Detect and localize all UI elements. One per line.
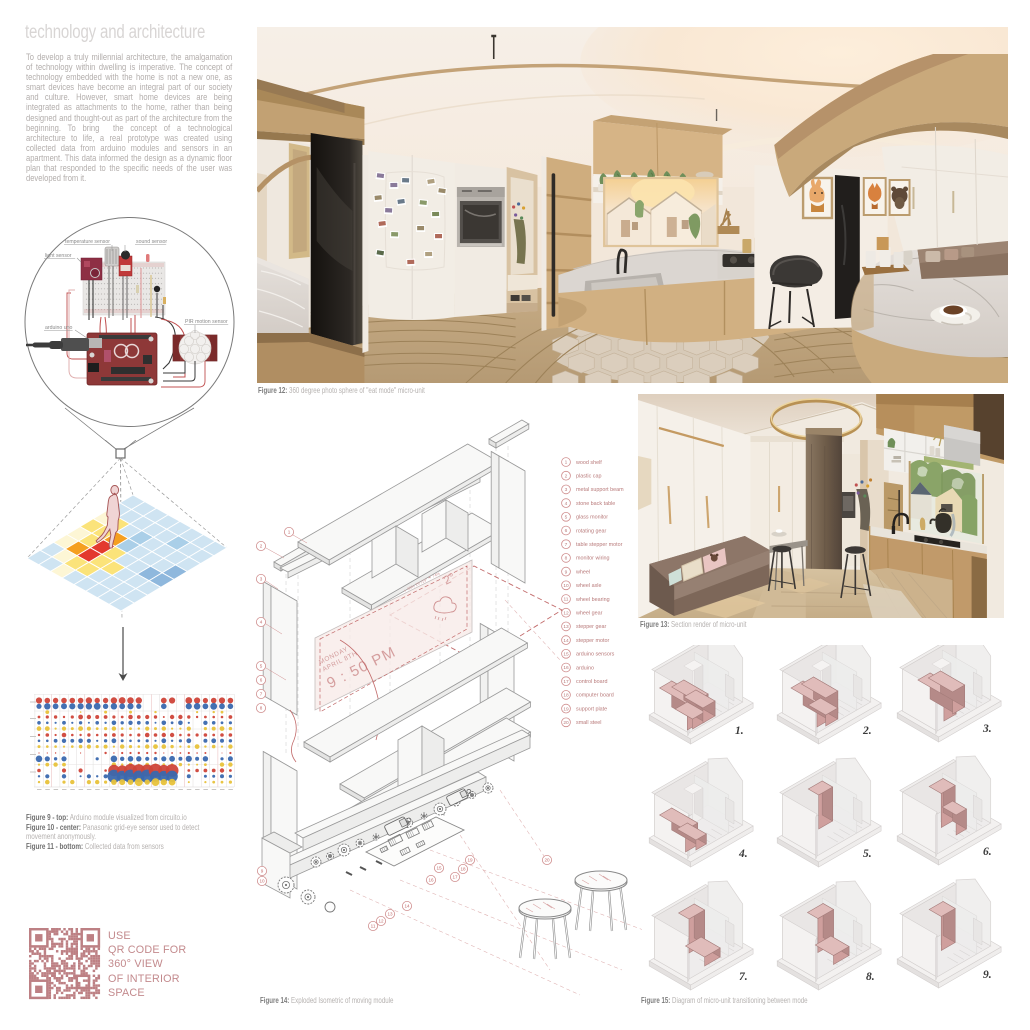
svg-text:16: 16 (428, 878, 434, 883)
svg-text:9.: 9. (983, 969, 992, 981)
svg-text:8: 8 (565, 556, 568, 562)
svg-text:stone back table: stone back table (576, 501, 615, 507)
svg-text:2: 2 (260, 544, 263, 549)
svg-text:wheel gear: wheel gear (575, 611, 603, 617)
svg-text:7.: 7. (739, 971, 748, 983)
svg-text:1: 1 (288, 530, 291, 535)
svg-text:metal support beam: metal support beam (576, 487, 624, 493)
svg-text:light sensor: light sensor (45, 253, 72, 259)
svg-text:support plate: support plate (576, 706, 607, 712)
svg-text:2: 2 (565, 473, 568, 479)
svg-text:20: 20 (563, 720, 569, 726)
svg-text:wood shelf: wood shelf (575, 460, 602, 466)
svg-text:temperature sensor: temperature sensor (65, 239, 110, 245)
svg-text:4: 4 (565, 501, 568, 507)
svg-text:17: 17 (563, 679, 569, 685)
svg-text:table stepper motor: table stepper motor (576, 542, 623, 548)
svg-text:19: 19 (563, 706, 569, 712)
svg-text:PIR motion sensor: PIR motion sensor (185, 319, 228, 325)
svg-text:5.: 5. (863, 848, 872, 860)
svg-text:15: 15 (436, 866, 442, 871)
svg-text:12: 12 (378, 919, 384, 924)
svg-text:monitor wiring: monitor wiring (576, 556, 610, 562)
svg-text:12: 12 (563, 610, 569, 616)
svg-text:10: 10 (259, 879, 265, 884)
svg-text:7: 7 (260, 692, 263, 697)
svg-text:3: 3 (260, 577, 263, 582)
svg-text:14: 14 (404, 904, 410, 909)
svg-text:control board: control board (576, 679, 607, 685)
svg-text:wheel axle: wheel axle (575, 583, 601, 589)
svg-text:8: 8 (260, 706, 263, 711)
svg-text:1: 1 (565, 460, 568, 466)
svg-text:17: 17 (452, 875, 458, 880)
svg-text:6.: 6. (983, 846, 992, 858)
svg-text:7: 7 (565, 542, 568, 548)
svg-text:stepper gear: stepper gear (576, 624, 606, 630)
svg-text:small steel: small steel (576, 720, 601, 726)
svg-text:arduino uno: arduino uno (45, 325, 73, 331)
svg-text:arduino: arduino (576, 665, 594, 671)
svg-text:5: 5 (565, 515, 568, 521)
svg-text:arduino sensors: arduino sensors (576, 652, 615, 658)
svg-text:wheel bearing: wheel bearing (575, 597, 610, 603)
svg-text:wheel: wheel (575, 569, 590, 575)
svg-text:11: 11 (564, 597, 569, 603)
svg-text:6: 6 (565, 528, 568, 534)
svg-text:4.: 4. (738, 848, 748, 860)
svg-text:plastic cap: plastic cap (576, 474, 601, 480)
svg-text:stepper motor: stepper motor (576, 638, 609, 644)
svg-text:6: 6 (260, 678, 263, 683)
svg-text:15: 15 (563, 652, 569, 658)
svg-text:18: 18 (460, 867, 466, 872)
svg-text:sound sensor: sound sensor (136, 239, 167, 245)
svg-text:20: 20 (544, 858, 550, 863)
svg-text:16: 16 (563, 665, 569, 671)
svg-text:8.: 8. (866, 971, 875, 983)
svg-text:11: 11 (371, 924, 376, 929)
svg-text:9: 9 (261, 869, 264, 874)
svg-text:19: 19 (467, 858, 473, 863)
svg-text:5: 5 (260, 664, 263, 669)
svg-text:18: 18 (563, 693, 569, 699)
svg-text:rotating gear: rotating gear (576, 528, 606, 534)
svg-text:10: 10 (563, 583, 569, 589)
svg-text:glass monitor: glass monitor (576, 515, 608, 521)
svg-text:3: 3 (565, 487, 568, 493)
svg-text:3.: 3. (982, 723, 992, 735)
svg-text:14: 14 (563, 638, 569, 644)
svg-text:4: 4 (260, 620, 263, 625)
svg-text:1.: 1. (735, 725, 744, 737)
svg-text:9: 9 (565, 569, 568, 575)
svg-text:13: 13 (387, 912, 393, 917)
svg-text:13: 13 (563, 624, 569, 630)
svg-text:computer board: computer board (576, 693, 614, 699)
svg-text:2.: 2. (862, 725, 872, 737)
